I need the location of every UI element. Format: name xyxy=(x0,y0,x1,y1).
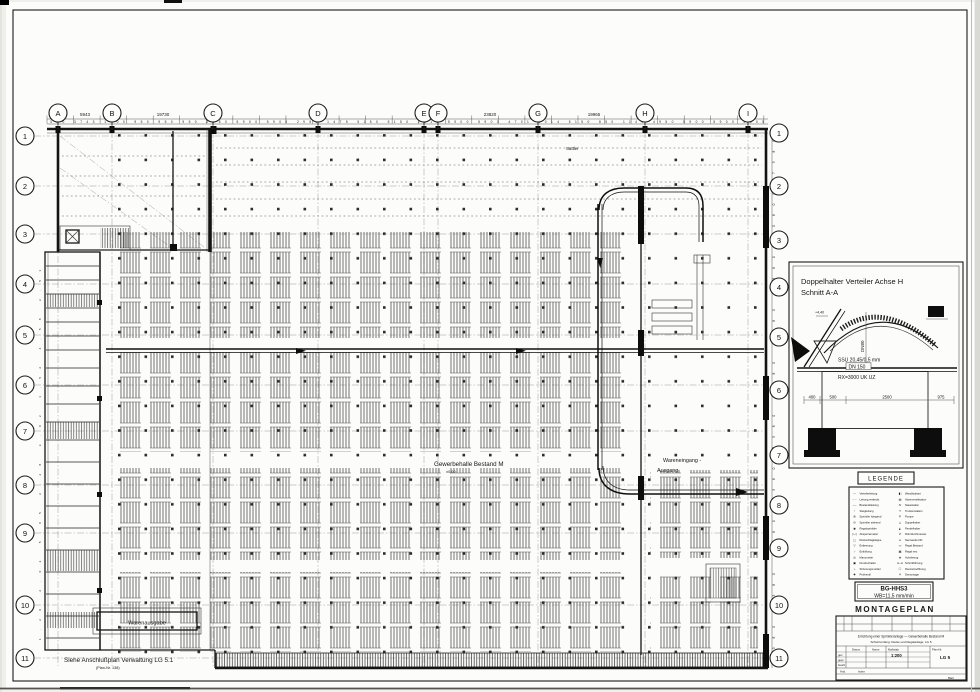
legend-symbol: ⌁ xyxy=(854,567,856,571)
legend-entry-label: Trockenstation xyxy=(905,509,923,513)
axis-row-4r: 4 xyxy=(770,278,788,296)
legend-entry-label: Druckschalter xyxy=(860,561,877,565)
dn150-label: DN 150 xyxy=(849,364,866,370)
svg-text:7: 7 xyxy=(777,451,781,460)
legend-symbol: ⌀ xyxy=(899,538,901,542)
legend-entry-label: Regalsprinkler xyxy=(860,526,877,530)
svg-text:9: 9 xyxy=(777,544,781,553)
svg-text:Plan-Nr.: Plan-Nr. xyxy=(932,648,942,652)
svg-text:bearb.: bearb. xyxy=(838,663,846,667)
axis-row-3r: 3 xyxy=(770,231,788,249)
legend-symbol: P xyxy=(899,515,901,519)
svg-text:3: 3 xyxy=(777,236,781,245)
montageplan-sheet: 5943 19730 23820 19965 300 3743 1400 950… xyxy=(0,0,980,692)
svg-text:gez.: gez. xyxy=(838,653,844,657)
svg-text:LG 5: LG 5 xyxy=(940,655,951,660)
legend-entry-label: Strömungsmelder xyxy=(860,567,881,571)
svg-text:I: I xyxy=(747,109,749,118)
legend-title: LEGENDE xyxy=(868,477,904,483)
detail-title-1: Doppelhalter Verteiler Achse H xyxy=(801,277,903,286)
svg-text:3: 3 xyxy=(23,230,27,239)
svg-text:975: 975 xyxy=(938,395,946,400)
svg-text:Name: Name xyxy=(872,648,880,652)
loading-dock-strip xyxy=(216,653,766,667)
axis-row-8r: 8 xyxy=(770,496,788,514)
legend-symbol: ▣ xyxy=(853,561,856,565)
wareneingang-label: Wareneingang - xyxy=(663,458,701,464)
svg-text:C: C xyxy=(210,109,216,118)
svg-text:E: E xyxy=(421,109,426,118)
svg-text:5943: 5943 xyxy=(80,112,91,117)
legend-entry-label: Pendelhalter xyxy=(905,526,920,530)
svg-text:2500: 2500 xyxy=(882,395,892,400)
axis-row-2r: 2 xyxy=(770,177,788,195)
legend-entry-label: Entleerung xyxy=(860,544,874,548)
detail-title-2: Schnitt A-A xyxy=(801,288,838,297)
svg-text:6: 6 xyxy=(23,381,27,390)
rx-label: RX=3000 UK UZ xyxy=(838,375,875,381)
svg-text:Maßstab: Maßstab xyxy=(888,648,899,652)
svg-text:5: 5 xyxy=(23,331,27,340)
svg-text:1: 1 xyxy=(23,132,27,141)
dn80-label: DN80 xyxy=(860,340,865,352)
legend-symbol: ·—· xyxy=(852,503,857,507)
legend-entry-label: Nassstation xyxy=(905,503,920,507)
svg-text:Index: Index xyxy=(858,670,865,674)
svg-text:9: 9 xyxy=(23,529,27,538)
axis-row-5r: 5 xyxy=(770,328,788,346)
svg-text:400: 400 xyxy=(809,395,817,400)
legend-symbol: ◧ xyxy=(899,492,902,496)
svg-text:11: 11 xyxy=(21,654,29,663)
legend-symbol: ☐ xyxy=(899,567,902,571)
legend-symbol: ▭ xyxy=(899,544,902,548)
axis-row-10r: 10 xyxy=(770,596,788,614)
warenausgabe-label: Warenausgabe xyxy=(128,621,166,627)
svg-text:2: 2 xyxy=(777,182,781,191)
legend-entry-label: Verteilerleitung xyxy=(860,492,878,496)
legend-symbol: A–A xyxy=(897,561,903,565)
project-desc-2: Schutzumfang: Decke und Regalanlage, LG … xyxy=(870,640,931,644)
stamp-line-1: BG-HHS3 xyxy=(880,587,908,593)
svg-text:8: 8 xyxy=(777,501,781,510)
axis-row-11r: 11 xyxy=(770,649,788,667)
legend-entry-label: Doppelhalter xyxy=(905,521,920,525)
legend-entry-label: Achsbezug xyxy=(905,555,919,559)
dim-100-label: 100 xyxy=(932,314,938,318)
legend-entry-label: Sprinkler hängend xyxy=(860,515,882,519)
scan-artifact xyxy=(0,0,9,5)
svg-text:F: F xyxy=(436,109,441,118)
svg-text:6: 6 xyxy=(777,386,781,395)
legend-symbol: ◉ xyxy=(853,526,856,530)
svg-text:10: 10 xyxy=(775,601,783,610)
legend-entry-label: Bestandsleitung xyxy=(860,503,880,507)
svg-text:A: A xyxy=(55,109,60,118)
svg-text:23820: 23820 xyxy=(484,112,497,117)
svg-text:10: 10 xyxy=(21,601,29,610)
legend-entry-label: Sprinkler stehend xyxy=(860,521,881,525)
legend-entry-label: Absperrarmatur xyxy=(860,532,879,536)
legend-entry-label: Alarmventilstation xyxy=(905,497,927,501)
legend-symbol: ▷◁ xyxy=(852,532,857,536)
axis-row-1r: 1 xyxy=(770,124,788,142)
legend-entry-label: Wandhydrant xyxy=(905,492,921,496)
legend-entry-label: Leitung verdeckt xyxy=(860,497,880,501)
svg-text:G: G xyxy=(535,109,541,118)
svg-text:H: H xyxy=(642,109,647,118)
svg-text:Änd.: Änd. xyxy=(840,670,846,674)
axis-row-6r: 6 xyxy=(770,381,788,399)
legend-entry-label: Steigleitung xyxy=(860,509,875,513)
legend-entry-label: Rückschlagklappe xyxy=(860,538,882,542)
svg-text:Datum: Datum xyxy=(852,648,861,652)
legend-entry-label: Rohrdurchmesser xyxy=(905,532,926,536)
legend-symbol: ○ xyxy=(854,550,856,554)
svg-text:1: 1 xyxy=(777,129,781,138)
ausgang-label: Ausgang xyxy=(657,468,678,474)
axis-row-7r: 7 xyxy=(770,446,788,464)
footnote-sub: (Plan-Nr. 138) xyxy=(96,666,120,670)
plan-title: MONTAGEPLAN xyxy=(855,605,935,614)
svg-text:8: 8 xyxy=(23,481,27,490)
svg-text:4: 4 xyxy=(777,283,781,292)
legend-symbol: ∅ xyxy=(899,532,902,536)
svg-text:gepr.: gepr. xyxy=(838,658,844,662)
legend-symbol: ◎ xyxy=(853,555,856,559)
legend-entry-label: Prüfventil xyxy=(860,573,872,577)
svg-text:5: 5 xyxy=(777,333,781,342)
svg-text:D: D xyxy=(315,109,321,118)
hall-sub-label: ±0,00 xyxy=(446,470,455,474)
legend-symbol: ▤ xyxy=(899,497,902,501)
svg-text:7: 7 xyxy=(23,427,27,436)
svg-text:19730: 19730 xyxy=(157,112,170,117)
svg-text:B: B xyxy=(109,109,114,118)
legend-entry-label: Nennweite DN xyxy=(905,538,922,542)
footnote: Siehe Anschlußplan Verwaltung LG 5.1 xyxy=(64,657,174,664)
legend-symbol: — xyxy=(853,492,856,496)
legend-symbol: N xyxy=(899,503,901,507)
svg-text:Blatt: Blatt xyxy=(948,676,954,680)
legend-symbol: – – xyxy=(852,497,857,501)
legend-entry-label: Pumpe xyxy=(905,515,914,519)
svg-text:500: 500 xyxy=(830,395,838,400)
svg-text:1:200: 1:200 xyxy=(891,653,902,658)
axis-row-9r: 9 xyxy=(770,539,788,557)
project-desc-1: Errichtung einer Sprinkleranlage — Gewer… xyxy=(858,635,945,639)
legend-entry-label: Revisionsöffnung xyxy=(905,567,926,571)
svg-text:11: 11 xyxy=(775,654,783,663)
level-label: +4,40 xyxy=(815,311,824,315)
scan-artifact xyxy=(164,0,182,3)
legend-entry-label: Regal Bestand xyxy=(905,544,923,548)
legend-entry-label: Manometer xyxy=(860,555,874,559)
legend-symbol: ▦ xyxy=(899,550,902,554)
svg-text:19965: 19965 xyxy=(588,112,601,117)
legend-entry-label: Entlüftung xyxy=(860,550,873,554)
svg-text:4: 4 xyxy=(23,280,27,289)
legend-entry-label: Schnittführung xyxy=(905,561,923,565)
roof-note-label: Sattler xyxy=(566,146,579,151)
legend-entry-label: Regal neu xyxy=(905,550,918,554)
legend-entry-label: Demontage xyxy=(905,573,919,577)
legend-symbol: T xyxy=(899,509,901,513)
stamp-line-2: WB=11,5 mm/min xyxy=(874,594,914,600)
svg-text:2: 2 xyxy=(23,182,27,191)
hall-label: Gewerbehalle Bestand M xyxy=(434,461,503,468)
